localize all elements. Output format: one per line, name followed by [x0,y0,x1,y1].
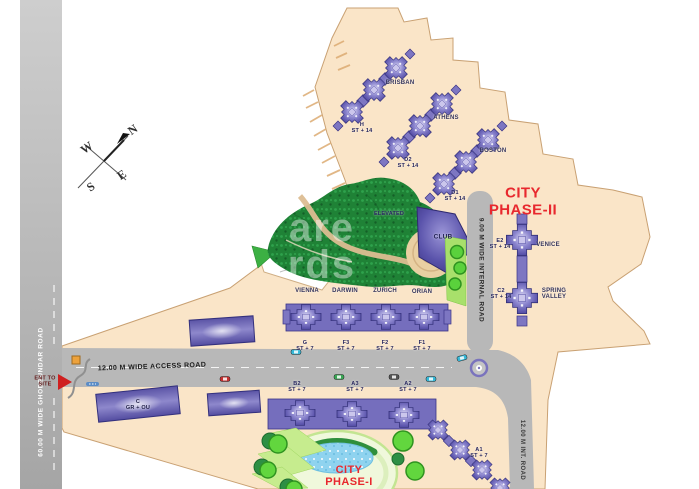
tree-icon [269,435,287,453]
block-label-b2: B2ST + 7 [288,381,306,393]
block-label-c2: C2ST + 14 [491,288,512,300]
ghodbundar-road-label: 60.00 M WIDE GHODBUNDAR ROAD [38,327,45,456]
tower-label-zurich: ZURICH [373,288,397,294]
block-label-d2: D2ST + 14 [398,157,419,169]
block-label-f1: F1ST + 7 [413,340,431,352]
block-label-f2: F2ST + 7 [376,340,394,352]
block-label-h: HST + 14 [352,122,373,134]
block-label-g: GST + 7 [296,340,314,352]
tree-icon [451,246,464,259]
tower-label-vienna: VIENNA [295,288,319,294]
block-label-a2: A2ST + 7 [399,381,417,393]
tower-label-boston: BOSTON [480,148,507,154]
tower-label-venice: VENICE [536,242,560,248]
tree-icon [406,462,424,480]
tower-label-darwin: DARWIN [332,288,358,294]
internal-road2-label: 12.00 M INT. ROAD [519,420,525,480]
internal-road-label: 9.00 M WIDE INTERNAL ROAD [478,218,485,322]
elevated-garden-label: ELEVATED [374,211,404,217]
block-label-f3: F3ST + 7 [337,340,355,352]
block-label-e2: E2ST + 14 [490,238,511,250]
north-arrow-icon [117,133,130,144]
tree-icon [449,278,461,290]
car-icon [389,375,399,380]
tower-label-brisban: BRISBAN [386,80,415,86]
tower-label-orian: ORIAN [412,289,432,295]
entry-label: ENT TOSITE [34,376,55,389]
site-plan-canvas [0,0,699,489]
tree-icon [454,262,466,274]
car-icon [334,375,344,380]
block-label-a3: A3ST + 7 [346,381,364,393]
phase2-title: CITYPHASE-II [489,186,557,219]
car-icon [220,377,230,382]
tower-label-athens: ATHENS [433,115,458,121]
site-plan-map: BRISBAN ATHENS BOSTON VENICE SPRING VALL… [0,0,699,489]
club-label: CLUB [434,234,453,241]
phase1-title: CITYPHASE-I [325,464,372,488]
vienna-row-buildings [283,304,451,331]
block-label-d1: D1ST + 14 [445,190,466,202]
block-label-c: CGR + OU [126,399,150,411]
tree-icon [393,431,413,451]
tree-icon [260,462,276,478]
car-icon [426,377,436,382]
block-label-a1: A1ST + 7 [470,447,488,459]
tower-label-spring-valley: SPRING VALLEY [542,288,566,300]
gate-icon [72,356,80,364]
